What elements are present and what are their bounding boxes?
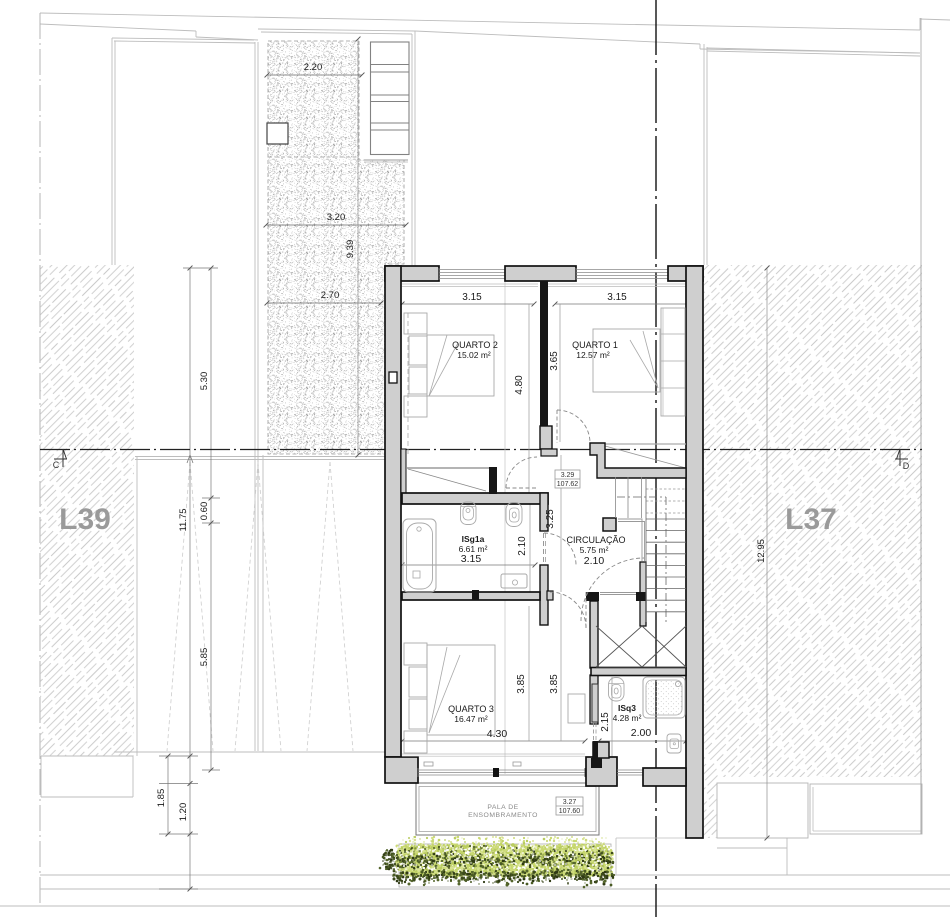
svg-text:3.15: 3.15 [607,292,627,303]
svg-text:3.29: 3.29 [561,472,575,479]
svg-text:ISq3: ISq3 [618,703,636,713]
svg-text:3.65: 3.65 [549,351,560,371]
svg-text:ISg1a: ISg1a [462,534,485,544]
svg-text:12.95: 12.95 [756,539,767,563]
svg-text:CIRCULAÇÃO: CIRCULAÇÃO [566,535,625,545]
svg-text:C: C [53,460,60,470]
svg-text:3.20: 3.20 [327,212,346,223]
svg-text:3.27: 3.27 [563,799,577,806]
svg-text:ENSOMBRAMENTO: ENSOMBRAMENTO [468,812,538,819]
svg-text:11.75: 11.75 [178,508,189,531]
svg-text:PALA DE: PALA DE [487,804,518,811]
svg-text:5.75 m²: 5.75 m² [580,545,609,555]
svg-text:2.10: 2.10 [517,536,528,556]
svg-text:1.85: 1.85 [156,789,167,808]
svg-text:QUARTO 1: QUARTO 1 [572,340,618,350]
svg-text:2.15: 2.15 [600,712,611,732]
svg-text:QUARTO 3: QUARTO 3 [448,704,494,714]
svg-text:9.39: 9.39 [345,240,356,259]
svg-text:107.60: 107.60 [559,808,581,815]
svg-text:4.80: 4.80 [514,375,525,395]
svg-text:15.02 m²: 15.02 m² [457,350,491,360]
svg-text:L39: L39 [59,503,111,536]
svg-text:4.30: 4.30 [487,728,508,740]
svg-text:3.15: 3.15 [461,553,482,565]
svg-text:0.60: 0.60 [199,502,210,521]
svg-text:D: D [903,461,910,471]
svg-text:QUARTO 2: QUARTO 2 [452,340,498,350]
svg-text:2.00: 2.00 [631,727,652,739]
svg-text:5.30: 5.30 [199,372,210,391]
svg-text:2.10: 2.10 [584,555,605,567]
svg-text:2.70: 2.70 [321,290,340,301]
svg-text:3.85: 3.85 [516,674,527,694]
svg-text:3.25: 3.25 [545,509,556,529]
svg-text:3.15: 3.15 [462,292,482,303]
svg-text:12.57 m²: 12.57 m² [576,350,610,360]
svg-text:1.20: 1.20 [178,803,189,822]
svg-text:16.47 m²: 16.47 m² [454,714,488,724]
svg-text:107.62: 107.62 [557,481,579,488]
svg-text:4.28 m²: 4.28 m² [613,713,642,723]
svg-text:3.85: 3.85 [549,674,560,694]
svg-text:L37: L37 [785,503,837,536]
svg-text:5.85: 5.85 [199,648,210,667]
svg-text:2.20: 2.20 [304,62,323,73]
